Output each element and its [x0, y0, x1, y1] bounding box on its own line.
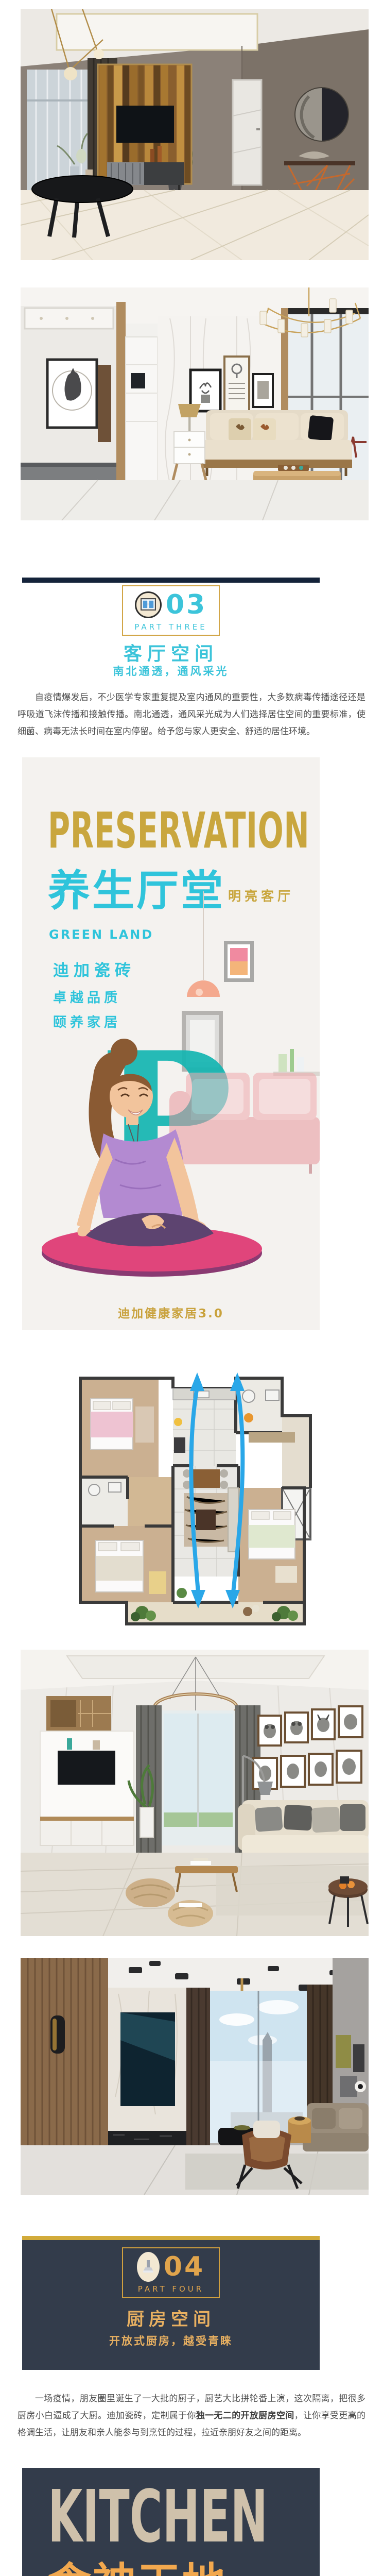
- sofa: [202, 410, 352, 476]
- tv-screen: [58, 1751, 115, 1785]
- section4-subtitle: 开放式厨房，越受青睐: [22, 2333, 320, 2348]
- tv-wall: [108, 1988, 186, 2146]
- preservation-poster: PRESERVATION 养生厅堂 明亮客厅 GREEN LAND 迪加瓷砖 卓…: [22, 757, 320, 1330]
- poster2-title-cn: 食神天地: [48, 2549, 227, 2576]
- living-room-photo-1: [21, 9, 369, 260]
- small-print: [253, 374, 273, 407]
- floor-plan-drawing: [67, 1355, 316, 1628]
- black-pillow: [308, 415, 334, 442]
- section4-paragraph: 一场疫情，朋友圈里诞生了一大批的厨子，厨艺大比拼轮番上演，这次隔离，把很多厨房小…: [18, 2391, 365, 2442]
- hallway: [21, 306, 118, 480]
- living-room-photo-4: [21, 1958, 369, 2195]
- door: [233, 80, 262, 185]
- photo3-illustration: [21, 1650, 369, 1936]
- poster1-caption: 迪加健康家居3.0: [22, 1303, 320, 1321]
- side-table-gold: [288, 2116, 311, 2143]
- tv-screen: [116, 106, 174, 143]
- pink-lamp: [187, 980, 220, 997]
- round-wall-art: [295, 88, 349, 141]
- section4-divider: 04 PART FOUR 厨房空间 开放式厨房，越受青睐: [22, 2236, 320, 2370]
- wall-shelf: [273, 1049, 320, 1076]
- section4-paragraph-bold: 独一无二的开放厨房空间: [196, 2411, 294, 2421]
- photo1-illustration: [21, 9, 369, 260]
- living-room-photo-3: [21, 1650, 369, 1936]
- section3-paragraph: 自疫情爆发后，不少医学专家重复提及室内通风的重要性，大多数病毒传播途径还是呼吸道…: [18, 689, 365, 740]
- section3-title: 客厅空间: [22, 639, 320, 666]
- section4-number-box: 04 PART FOUR: [122, 2247, 220, 2298]
- floor-plan: [67, 1355, 316, 1628]
- pink-sofa: [169, 1073, 320, 1174]
- section3-divider-bar: [22, 578, 320, 583]
- living-room-photo-2: [21, 287, 369, 520]
- photo2-illustration: [21, 287, 369, 520]
- kitchen-poster: KITCHEN 食神天地 最美厨房 GREEN LAND 迪加瓷砖 美食空间 K: [22, 2468, 320, 2576]
- tv-feature-wall: [98, 64, 191, 194]
- window-icon: [135, 591, 162, 618]
- section4-gold-bar: [22, 2236, 320, 2240]
- section3-subtitle: 南北通透，通风采光: [22, 663, 320, 679]
- meditation-illustration: P: [22, 891, 320, 1314]
- section4-title: 厨房空间: [22, 2305, 320, 2330]
- section3-number: 03: [166, 589, 207, 620]
- section4-part-label: PART FOUR: [138, 2284, 204, 2294]
- poster2-title-en: KITCHEN: [48, 2475, 268, 2559]
- sofa: [303, 2103, 369, 2151]
- section3-part-label: PART THREE: [134, 622, 207, 632]
- poster2-tag: 最美厨房: [228, 2574, 292, 2576]
- wall-sconce: [50, 2015, 65, 2054]
- abstract-art-panels: [336, 2035, 366, 2097]
- photo4-illustration: [21, 1958, 369, 2195]
- range-hood-icon: [137, 2252, 160, 2282]
- window: [161, 1710, 236, 1845]
- pink-art-frame: [224, 941, 254, 982]
- section3-number-box: 03 PART THREE: [122, 585, 220, 636]
- poster1-title-en: PRESERVATION: [48, 803, 309, 859]
- article-page: 03 PART THREE 客厅空间 南北通透，通风采光 自疫情爆发后，不少医学…: [0, 0, 383, 2576]
- section4-number: 04: [164, 2251, 205, 2282]
- letter-board-print: [224, 357, 249, 414]
